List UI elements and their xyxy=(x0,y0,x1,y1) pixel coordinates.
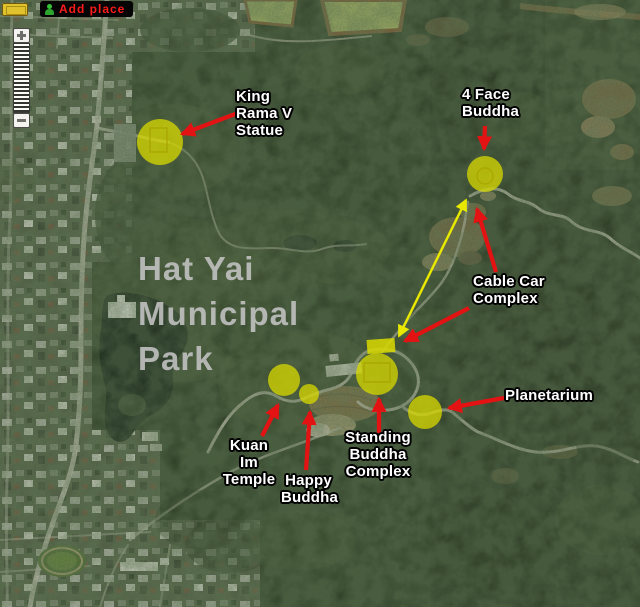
park-title: Hat Yai Municipal Park xyxy=(138,246,299,381)
zoom-out-button[interactable] xyxy=(13,113,30,128)
add-place-label: Add place xyxy=(59,2,125,16)
arrow-planetarium xyxy=(449,398,504,408)
highlight-standing-buddha-complex xyxy=(356,353,398,395)
label-king-rama-v-statue: King Rama V Statue xyxy=(236,88,292,139)
label-kuan-im-temple: Kuan Im Temple xyxy=(220,437,278,488)
person-icon xyxy=(45,4,54,15)
label-happy-buddha: Happy Buddha xyxy=(281,472,336,506)
arrow-kuan-im-temple xyxy=(262,405,278,436)
highlight-happy-buddha xyxy=(299,384,319,404)
map-type-badge-icon xyxy=(6,6,26,15)
arrow-cable-car-station xyxy=(405,308,469,341)
add-place-button[interactable]: Add place xyxy=(40,1,133,17)
arrow-cable-car-complex xyxy=(477,209,496,272)
zoom-level-ladder[interactable] xyxy=(13,43,30,113)
map-type-badge[interactable] xyxy=(2,3,28,16)
highlight-king-rama-v-statue xyxy=(137,119,183,165)
zoom-in-button[interactable] xyxy=(13,28,30,43)
label-4-face-buddha: 4 Face Buddha xyxy=(462,86,519,120)
highlight-planetarium xyxy=(408,395,442,429)
label-cable-car-complex: Cable Car Complex xyxy=(473,273,545,307)
highlight-4-face-buddha xyxy=(467,156,503,192)
highlight-cable-car-station xyxy=(367,338,396,354)
zoom-slider[interactable] xyxy=(13,28,30,128)
map-viewport[interactable]: Hat Yai Municipal Park King Rama V Statu… xyxy=(0,0,640,607)
arrow-4-face-buddha xyxy=(484,126,485,149)
arrow-happy-buddha xyxy=(306,412,310,470)
label-standing-buddha-complex: Standing Buddha Complex xyxy=(345,429,411,480)
label-planetarium: Planetarium xyxy=(505,387,593,404)
